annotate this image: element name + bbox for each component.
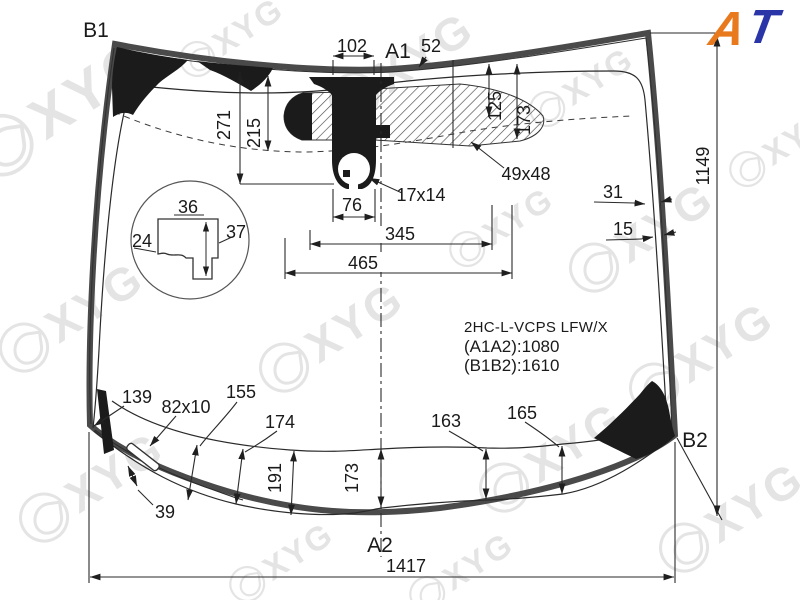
windshield-technical-drawing: { "title_block": { "part_code": "2HC-L-V… — [0, 0, 800, 600]
detail-bracket-shape — [158, 219, 218, 279]
dim-49x48: 49x48 — [501, 164, 550, 184]
part-info-block: 2HC-L-VCPS LFW/X (A1A2):1080 (B1B2):1610 — [464, 320, 608, 375]
dim-15-arrow-a — [641, 237, 653, 239]
dim-49x48-leader — [471, 142, 504, 168]
dim-39-line — [128, 466, 137, 486]
dim-82x10-leader — [150, 416, 176, 446]
dim-52: 52 — [421, 36, 441, 56]
part-code: 2HC-L-VCPS LFW/X — [464, 320, 608, 337]
dim-165: 165 — [507, 403, 537, 423]
dim-82x10: 82x10 — [161, 397, 210, 417]
dim-39: 39 — [155, 502, 175, 522]
bottom-right-corner-patch — [594, 381, 675, 459]
length-a1a2: (A1A2):1080 — [464, 337, 608, 356]
sensor-pad-hatch-left-black-tip — [284, 93, 312, 140]
dim-24: 24 — [132, 231, 152, 251]
at-logo-letter-a: A — [705, 2, 749, 57]
dim-139: 139 — [122, 387, 152, 407]
at-logo: T A — [704, 2, 796, 52]
dim-31-arrow-a — [634, 203, 645, 204]
dim-345: 345 — [385, 224, 415, 244]
dim-102: 102 — [337, 36, 367, 56]
dim-17x14: 17x14 — [396, 185, 445, 205]
dim-465: 465 — [348, 253, 378, 273]
dim-271: 271 — [214, 110, 234, 140]
bottom-left-edge-strip — [97, 389, 114, 454]
dim-163: 163 — [431, 411, 461, 431]
label-a2: A2 — [367, 534, 393, 557]
sensor-window-notch — [343, 170, 350, 177]
bracket-bottom-slot — [349, 183, 358, 190]
dim-15: 15 — [613, 219, 633, 239]
inner-edge-left — [93, 86, 131, 428]
edge-hug-right — [646, 38, 672, 433]
dim-174: 174 — [265, 412, 295, 432]
dim-125: 125 — [485, 91, 505, 121]
label-b2: B2 — [682, 429, 708, 452]
dim-155: 155 — [226, 382, 256, 402]
dim-191: 191 — [265, 463, 285, 493]
length-b1b2: (B1B2):1610 — [464, 356, 608, 375]
dim-31: 31 — [603, 182, 623, 202]
dim-36: 36 — [178, 197, 198, 217]
dim-215: 215 — [244, 118, 264, 148]
label-a1: A1 — [385, 40, 411, 63]
drawing-canvas: B1 A1 A2 B2 102 52 271 215 125 173 49x48… — [0, 0, 800, 600]
dim-76: 76 — [342, 195, 362, 215]
dim-173-top: 173 — [514, 105, 534, 135]
label-b1: B1 — [83, 19, 109, 42]
dim-173-bottom: 173 — [342, 463, 362, 493]
at-logo-letter-t: T — [743, 0, 782, 55]
dim-37: 37 — [226, 222, 246, 242]
dim-1417: 1417 — [386, 556, 426, 576]
sticker-82x10 — [126, 442, 161, 472]
dim-1149: 1149 — [693, 147, 713, 186]
